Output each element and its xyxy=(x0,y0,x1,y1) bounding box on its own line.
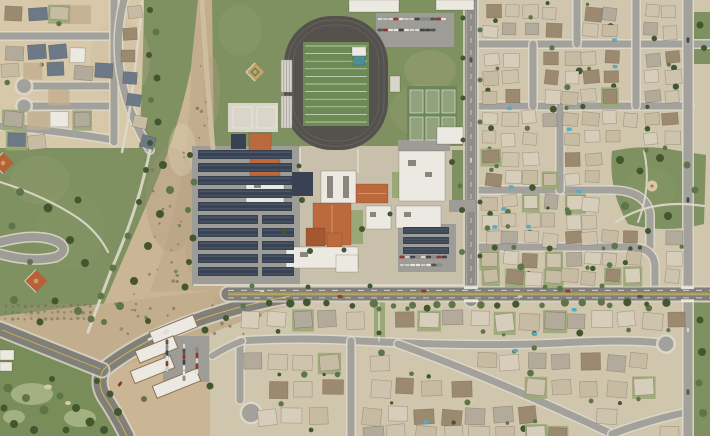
house xyxy=(319,354,340,371)
pool xyxy=(567,127,572,131)
house xyxy=(482,113,497,125)
tree xyxy=(459,249,465,255)
house xyxy=(1,63,19,78)
tree xyxy=(56,21,61,26)
street-tree xyxy=(512,301,519,308)
scrub xyxy=(170,249,172,251)
car xyxy=(687,390,690,395)
house xyxy=(388,406,407,421)
tree xyxy=(489,168,493,172)
car xyxy=(470,158,473,163)
car xyxy=(431,256,436,259)
scrub xyxy=(200,110,203,113)
solar-panel-glint xyxy=(263,230,293,232)
tree xyxy=(636,397,640,401)
street-tree xyxy=(370,299,378,307)
pool xyxy=(572,308,577,312)
scrub-row xyxy=(51,305,53,307)
tree xyxy=(565,207,570,212)
house xyxy=(268,354,288,370)
tree xyxy=(130,277,138,285)
car xyxy=(400,264,405,267)
solar-panel-glint xyxy=(404,231,448,233)
street-tree xyxy=(598,298,605,305)
solar-carport-row xyxy=(198,189,292,198)
tree xyxy=(94,378,100,384)
house xyxy=(132,115,148,130)
tree xyxy=(459,207,465,213)
house xyxy=(502,112,519,126)
house xyxy=(603,110,617,123)
solar-panel-glint xyxy=(263,217,293,219)
solar-carport-row xyxy=(198,228,258,237)
solar-carport-row xyxy=(198,254,258,263)
house xyxy=(602,24,618,37)
car xyxy=(196,348,199,353)
school-building-tile-roof xyxy=(306,228,325,246)
house xyxy=(582,23,599,38)
house xyxy=(528,353,546,369)
scrub-row xyxy=(25,312,27,314)
street-tree xyxy=(409,302,416,309)
car xyxy=(183,376,186,381)
pool xyxy=(576,190,581,194)
scrub xyxy=(229,325,232,328)
street-tree xyxy=(539,303,545,309)
tree xyxy=(543,285,548,290)
house xyxy=(123,28,138,41)
house xyxy=(661,6,675,18)
solar-carport-row xyxy=(198,176,292,185)
house xyxy=(501,133,515,147)
car xyxy=(441,18,446,21)
scrub-row xyxy=(17,311,19,313)
solar-panel-glint xyxy=(263,221,293,223)
house xyxy=(322,379,343,394)
car xyxy=(436,18,441,21)
tennis-court xyxy=(410,90,423,113)
car xyxy=(183,354,186,359)
tree xyxy=(335,372,341,378)
tree xyxy=(145,318,151,324)
house xyxy=(487,4,502,18)
car xyxy=(426,264,431,267)
car xyxy=(338,295,343,298)
car xyxy=(196,353,199,358)
house xyxy=(519,313,540,331)
house xyxy=(645,113,660,126)
house xyxy=(567,215,582,230)
house xyxy=(601,229,618,243)
house xyxy=(526,426,545,436)
house xyxy=(660,426,679,436)
scrub xyxy=(162,208,165,211)
tree xyxy=(153,29,160,36)
tree xyxy=(645,126,651,132)
house xyxy=(524,195,538,208)
car xyxy=(383,18,388,21)
street-tree xyxy=(579,299,586,306)
car xyxy=(420,18,425,21)
house xyxy=(28,7,48,21)
car xyxy=(404,29,409,32)
tree xyxy=(701,45,707,51)
house xyxy=(545,312,566,330)
house xyxy=(524,230,538,242)
street-tree xyxy=(644,302,649,307)
car xyxy=(470,58,473,63)
scrub xyxy=(177,243,179,245)
car xyxy=(405,264,410,267)
solar-panel-glint xyxy=(263,269,293,271)
house xyxy=(604,71,619,83)
scrub-row xyxy=(70,311,72,313)
school-building-tile-roof xyxy=(327,233,342,249)
house xyxy=(582,112,600,127)
tree xyxy=(532,345,537,350)
tree xyxy=(607,302,613,308)
house xyxy=(4,6,22,21)
scrub xyxy=(242,333,244,335)
house xyxy=(123,72,138,85)
solar-panel-glint xyxy=(404,229,448,231)
car xyxy=(566,290,571,293)
tree xyxy=(156,210,164,218)
car xyxy=(518,295,523,298)
solar-carport-row xyxy=(403,247,449,254)
scrub xyxy=(137,315,140,318)
tree xyxy=(146,52,152,58)
house xyxy=(541,213,554,227)
car xyxy=(183,371,186,376)
scrub-row xyxy=(44,317,47,320)
scrub-row xyxy=(77,304,80,307)
solar-panel-glint xyxy=(199,191,291,193)
house xyxy=(503,250,519,265)
tree xyxy=(697,22,704,29)
scrub-row xyxy=(56,317,59,320)
house xyxy=(565,152,580,166)
tree xyxy=(10,296,18,304)
satellite-map-canvas[interactable] xyxy=(0,0,710,436)
house xyxy=(70,48,85,63)
crosswalk xyxy=(464,299,478,302)
car xyxy=(196,369,199,374)
scrub xyxy=(126,332,129,335)
scrub xyxy=(131,309,133,311)
scrub-row xyxy=(4,304,7,307)
scrub xyxy=(203,124,205,126)
street-tree xyxy=(303,299,311,307)
house xyxy=(565,52,581,66)
house xyxy=(269,381,288,398)
house xyxy=(485,173,502,187)
house xyxy=(419,312,439,328)
pool xyxy=(424,420,429,424)
house xyxy=(94,63,113,79)
car xyxy=(183,365,186,370)
tree xyxy=(66,236,74,244)
car xyxy=(196,358,199,363)
house xyxy=(522,170,538,185)
car xyxy=(415,18,420,21)
tree xyxy=(478,78,483,83)
house xyxy=(49,6,69,20)
house xyxy=(522,110,537,124)
tree xyxy=(667,63,671,67)
house xyxy=(581,197,599,212)
scrub-row xyxy=(37,311,40,314)
tree xyxy=(377,307,382,312)
tree xyxy=(49,376,55,382)
house xyxy=(5,46,24,61)
tree xyxy=(22,394,30,402)
house xyxy=(580,271,595,286)
car xyxy=(378,29,383,32)
tree xyxy=(40,406,49,415)
house xyxy=(493,406,514,423)
vacant-lot xyxy=(48,89,69,105)
school-building xyxy=(0,350,14,360)
house xyxy=(477,352,497,367)
house xyxy=(585,130,600,142)
tree xyxy=(86,418,95,427)
pool xyxy=(526,225,531,229)
street-tree xyxy=(494,302,500,308)
solar-panel-glint xyxy=(263,234,293,236)
tree xyxy=(155,119,162,126)
house xyxy=(281,408,302,423)
solar-carport-row xyxy=(198,267,258,276)
tree xyxy=(699,409,707,417)
solar-panel-glint xyxy=(199,178,291,180)
tree xyxy=(492,244,498,250)
house xyxy=(547,253,561,267)
scrub xyxy=(175,274,177,276)
tree xyxy=(388,212,393,217)
scrub-row xyxy=(24,305,27,308)
tree xyxy=(190,235,197,242)
tree xyxy=(278,401,283,406)
scrub-row xyxy=(37,305,40,308)
house xyxy=(502,70,519,84)
tree xyxy=(143,167,149,173)
solar-panel-glint xyxy=(199,182,291,184)
car xyxy=(431,29,436,32)
scrub xyxy=(171,279,175,283)
ground-solar-array xyxy=(231,134,246,149)
solar-panel-glint xyxy=(199,247,257,249)
tree xyxy=(390,401,393,404)
tree xyxy=(461,16,466,21)
house xyxy=(257,409,277,427)
house xyxy=(8,133,26,147)
scrub-row xyxy=(76,317,79,320)
house xyxy=(625,268,641,283)
tree xyxy=(10,420,18,428)
tree xyxy=(506,224,511,229)
scrub-row xyxy=(23,318,25,320)
scrub-row xyxy=(89,311,92,314)
house xyxy=(482,150,499,163)
house xyxy=(603,89,617,103)
school-building xyxy=(336,255,358,272)
house xyxy=(506,269,524,284)
house xyxy=(363,426,385,436)
car xyxy=(383,29,388,32)
house xyxy=(585,153,602,166)
house xyxy=(468,426,489,436)
rooftop-unit xyxy=(425,172,432,177)
car xyxy=(415,264,420,267)
house xyxy=(482,25,498,38)
scrub-row xyxy=(70,304,73,307)
tree xyxy=(458,184,463,189)
solar-carport-row xyxy=(198,202,292,211)
house xyxy=(244,353,262,370)
tree xyxy=(186,259,192,265)
solar-panel-glint xyxy=(263,273,293,275)
tree xyxy=(322,373,325,376)
pool xyxy=(507,107,512,111)
solar-panel-glint xyxy=(404,241,448,243)
tree xyxy=(207,383,214,390)
solar-panel-glint xyxy=(199,273,257,275)
house xyxy=(506,4,520,17)
car xyxy=(409,18,414,21)
pool xyxy=(501,207,506,211)
street-tree xyxy=(662,299,670,307)
terrain-texture xyxy=(168,124,196,176)
tree xyxy=(378,349,385,356)
house xyxy=(47,62,64,76)
tree xyxy=(147,140,153,146)
car xyxy=(183,349,186,354)
house xyxy=(645,4,659,17)
tree xyxy=(645,105,649,109)
tree xyxy=(564,106,568,110)
tree xyxy=(493,18,498,23)
rooftop-unit xyxy=(343,176,349,198)
solar-panel-glint xyxy=(199,204,291,206)
scrub xyxy=(154,236,156,238)
scrub-row xyxy=(57,310,60,313)
tree xyxy=(166,186,174,194)
street-tree xyxy=(286,299,294,307)
nw-street-mid-bulb xyxy=(17,79,31,93)
pool xyxy=(612,38,617,42)
tree xyxy=(154,75,161,82)
car xyxy=(166,367,169,372)
car xyxy=(687,198,690,203)
house xyxy=(127,5,142,18)
tree xyxy=(550,106,557,113)
house xyxy=(395,378,413,395)
tree xyxy=(481,329,486,334)
tree xyxy=(368,284,373,289)
car xyxy=(442,256,447,259)
solar-panel-glint xyxy=(199,260,257,262)
house xyxy=(564,173,580,186)
tree xyxy=(546,1,550,5)
scrub xyxy=(180,220,182,222)
house xyxy=(644,69,659,83)
car xyxy=(166,345,169,350)
tree xyxy=(148,97,154,103)
street-tree xyxy=(391,303,396,308)
aerial-image xyxy=(0,0,710,436)
house xyxy=(50,112,68,127)
tree xyxy=(464,399,470,405)
house xyxy=(241,311,259,329)
house xyxy=(346,312,364,330)
tree xyxy=(88,316,95,323)
tree xyxy=(656,154,664,162)
tree xyxy=(576,330,583,337)
tree xyxy=(586,3,589,6)
house xyxy=(481,197,498,211)
house xyxy=(567,314,585,329)
tree xyxy=(461,56,466,61)
tree xyxy=(546,206,549,209)
house xyxy=(564,133,579,146)
tree xyxy=(159,161,167,169)
street-tree xyxy=(433,301,440,308)
pool xyxy=(492,225,497,229)
tree xyxy=(616,156,624,164)
tree xyxy=(309,428,314,433)
house xyxy=(592,311,613,328)
house xyxy=(666,252,682,266)
tree xyxy=(502,333,505,336)
tree xyxy=(187,152,193,158)
scrub-row xyxy=(4,311,6,313)
tree xyxy=(75,197,82,204)
tree xyxy=(16,188,24,196)
scrub xyxy=(169,205,172,208)
house xyxy=(545,270,562,284)
car xyxy=(183,344,186,349)
house xyxy=(585,7,603,23)
solar-panel-glint xyxy=(199,152,291,154)
house xyxy=(596,408,617,424)
car xyxy=(425,18,430,21)
tree xyxy=(529,184,536,191)
solar-panel-glint xyxy=(199,221,257,223)
house xyxy=(566,252,582,266)
tree xyxy=(147,7,153,13)
street-tree xyxy=(240,303,246,309)
pool xyxy=(532,332,537,336)
car xyxy=(431,264,436,267)
tree xyxy=(182,284,189,291)
tree xyxy=(496,67,500,71)
school-building xyxy=(349,0,399,12)
car xyxy=(393,29,398,32)
car xyxy=(420,29,425,32)
crosswalk xyxy=(681,287,694,290)
tree xyxy=(27,259,33,265)
house xyxy=(580,381,598,397)
tree xyxy=(517,263,524,270)
tree xyxy=(359,226,365,232)
solar-panel-glint xyxy=(199,269,257,271)
house xyxy=(442,310,463,325)
tree xyxy=(478,200,483,205)
bunker-1 xyxy=(44,385,52,390)
house xyxy=(503,54,519,68)
house xyxy=(496,426,515,436)
